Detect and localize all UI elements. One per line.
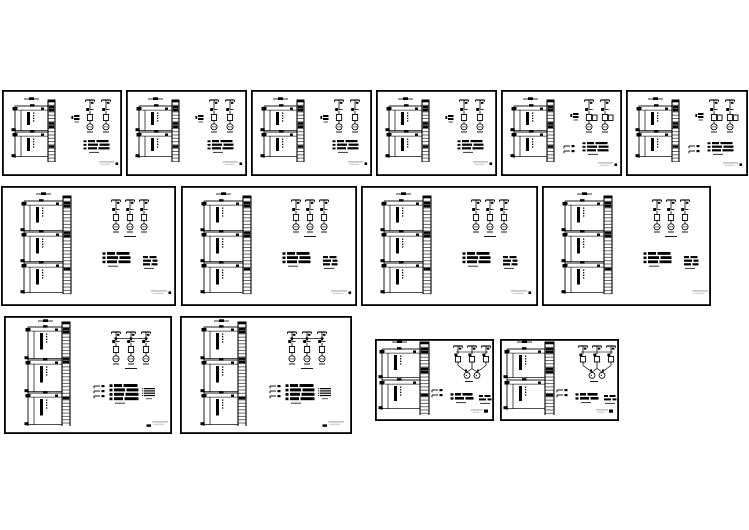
drawing-sheet [500, 339, 619, 421]
title-stamp [710, 291, 712, 294]
drawing-sheet [361, 186, 538, 306]
title-stamp [349, 291, 352, 294]
sheet-border [362, 187, 537, 305]
drawing-sheet [1, 186, 176, 306]
title-stamp [147, 424, 152, 426]
title-stamp [365, 162, 368, 165]
title-stamp [484, 410, 488, 413]
drawing-sheet [542, 186, 711, 306]
title-stamp [116, 162, 119, 165]
sheet-border [2, 187, 175, 305]
title-stamp [740, 163, 743, 166]
drawing-sheet [2, 90, 122, 176]
drawing-sheet [251, 90, 372, 176]
title-stamp [529, 291, 532, 294]
drawing-sheet [180, 316, 352, 434]
title-stamp [490, 162, 493, 165]
drawing-sheet [626, 90, 748, 176]
sheet-border [181, 317, 351, 433]
title-stamp [323, 424, 328, 426]
title-stamp [169, 291, 172, 294]
drawing-sheet [375, 339, 494, 421]
title-stamp [240, 162, 243, 165]
drawing-sheet [376, 90, 497, 176]
title-stamp [609, 410, 613, 413]
title-stamp [615, 163, 618, 166]
drawing-sheet [4, 316, 172, 434]
sheet-border [182, 187, 356, 305]
cad-sheet-collage [0, 0, 749, 530]
drawing-sheet [501, 90, 622, 176]
drawing-sheet [181, 186, 357, 306]
drawing-sheet [126, 90, 247, 176]
